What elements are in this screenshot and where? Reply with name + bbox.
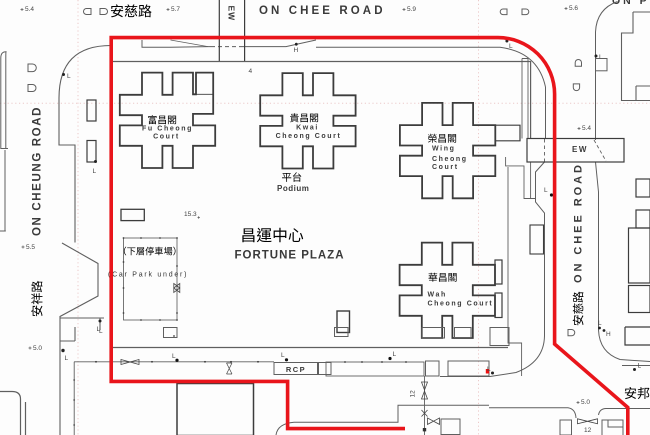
svg-text:15.3: 15.3 [184, 211, 197, 218]
svg-text:L: L [281, 352, 285, 359]
svg-text:L: L [487, 366, 491, 373]
svg-text:L: L [172, 353, 176, 360]
svg-text:L: L [509, 43, 513, 50]
svg-text:5.4: 5.4 [25, 6, 34, 13]
svg-text:L: L [599, 54, 603, 61]
svg-text:4: 4 [249, 68, 253, 75]
svg-text:Court: Court [153, 134, 180, 141]
svg-text:Cheong: Cheong [432, 156, 468, 163]
svg-text:5.9: 5.9 [407, 6, 416, 13]
svg-text:12: 12 [584, 427, 592, 434]
svg-text:12: 12 [410, 390, 417, 398]
svg-text:L: L [65, 355, 69, 362]
svg-text:H: H [294, 47, 299, 54]
svg-text:FORTUNE PLAZA: FORTUNE PLAZA [235, 250, 346, 262]
svg-text:ON CHEUNG ROAD: ON CHEUNG ROAD [32, 105, 44, 236]
svg-text:Kwai: Kwai [296, 125, 319, 132]
svg-text:Wah: Wah [428, 292, 447, 299]
svg-text:Fu Cheong: Fu Cheong [142, 126, 193, 133]
svg-text:5.4: 5.4 [582, 125, 591, 132]
svg-text:5.0: 5.0 [581, 399, 590, 406]
svg-text:L: L [67, 73, 71, 80]
svg-text:L: L [638, 363, 642, 370]
svg-text:5.0: 5.0 [33, 345, 42, 352]
svg-text:(Car Park under): (Car Park under) [108, 272, 188, 279]
svg-text:L: L [393, 351, 397, 358]
svg-text:Podium: Podium [277, 184, 309, 193]
svg-text:EW: EW [572, 145, 588, 154]
svg-text:Court: Court [432, 164, 459, 171]
svg-text:5.6: 5.6 [569, 5, 578, 12]
svg-text:ON CHEE ROAD: ON CHEE ROAD [259, 5, 386, 17]
svg-text:ON PO: ON PO [612, 0, 650, 7]
svg-text:EW: EW [227, 6, 237, 22]
svg-text:L: L [93, 168, 97, 175]
svg-text:RCP: RCP [286, 365, 306, 374]
svg-text:5.5: 5.5 [26, 244, 35, 251]
svg-text:Cheong Court: Cheong Court [428, 301, 494, 308]
svg-text:Wing: Wing [432, 146, 455, 153]
svg-text:Cheong Court: Cheong Court [276, 133, 342, 140]
svg-text:L: L [99, 328, 103, 335]
svg-text:L: L [544, 187, 548, 194]
svg-text:L: L [598, 320, 602, 327]
svg-text:H: H [606, 331, 611, 338]
svg-text:ON CHEE ROAD: ON CHEE ROAD [573, 163, 585, 283]
svg-text:5.7: 5.7 [171, 6, 180, 13]
